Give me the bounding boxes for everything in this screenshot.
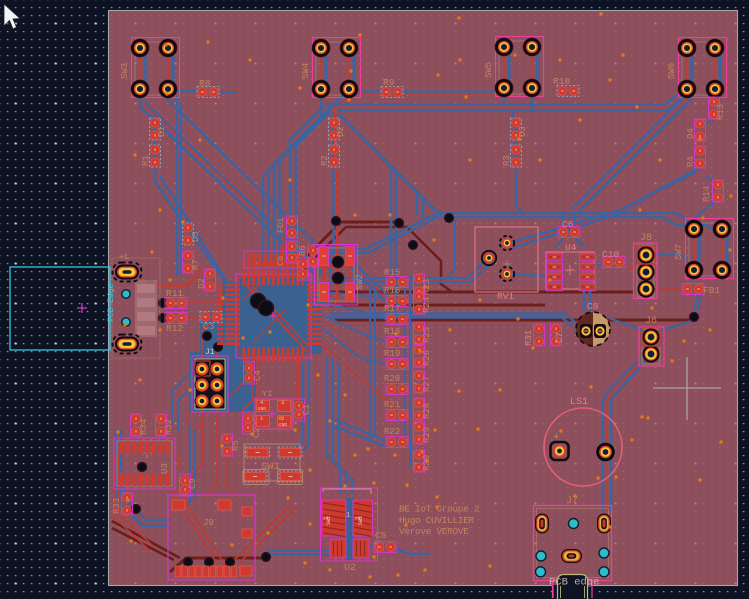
- svg-text:R16: R16: [384, 286, 400, 296]
- svg-text:R21: R21: [384, 400, 400, 410]
- svg-text:R33: R33: [112, 498, 122, 514]
- svg-text:R27: R27: [422, 376, 432, 392]
- svg-text:C6: C6: [562, 219, 574, 230]
- svg-text:J8: J8: [640, 233, 652, 244]
- svg-text:C5: C5: [375, 530, 387, 541]
- svg-text:LS1: LS1: [570, 397, 588, 408]
- svg-text:R8: R8: [199, 78, 211, 89]
- svg-text:J7: J7: [566, 496, 578, 507]
- svg-text:R10: R10: [553, 76, 570, 87]
- svg-text:R6: R6: [298, 245, 308, 256]
- svg-text:FB1: FB1: [703, 285, 720, 296]
- svg-text:D2: D2: [197, 278, 207, 289]
- svg-text:D2: D2: [336, 126, 346, 137]
- svg-text:J1: J1: [205, 348, 215, 357]
- svg-text:SW7: SW7: [674, 244, 684, 260]
- svg-text:R11: R11: [166, 288, 183, 299]
- svg-text:R26: R26: [422, 350, 432, 366]
- svg-text:1: 1: [346, 512, 350, 520]
- svg-text:R28: R28: [422, 403, 432, 419]
- svg-text:Hugo CUVILLIER: Hugo CUVILLIER: [399, 515, 475, 526]
- svg-text:+L: +L: [119, 252, 129, 262]
- svg-text:SW6: SW6: [667, 63, 677, 79]
- svg-text:R14: R14: [702, 186, 712, 202]
- svg-text:+: +: [553, 432, 560, 444]
- svg-text:R30: R30: [422, 455, 432, 471]
- svg-text:R18: R18: [384, 327, 400, 337]
- svg-text:R13: R13: [716, 104, 726, 120]
- svg-text:R2: R2: [320, 155, 330, 166]
- svg-text:U4: U4: [565, 242, 577, 253]
- svg-text:SW2: SW2: [326, 516, 332, 525]
- svg-text:R7: R7: [191, 259, 201, 270]
- svg-text:R31: R31: [524, 330, 534, 346]
- svg-text:Verove VEROVE: Verove VEROVE: [399, 526, 469, 537]
- svg-text:D1: D1: [157, 126, 167, 137]
- svg-text:C7: C7: [555, 332, 565, 343]
- svg-text:SW1: SW1: [261, 461, 280, 473]
- svg-text:R22: R22: [384, 427, 400, 437]
- svg-text:D4: D4: [686, 128, 696, 139]
- svg-text:R17: R17: [384, 304, 400, 314]
- svg-text:C3: C3: [203, 321, 215, 332]
- svg-text:GND: GND: [279, 422, 287, 428]
- svg-text:R9: R9: [383, 77, 395, 88]
- svg-text:R25: R25: [422, 327, 432, 343]
- svg-text:SW3: SW3: [120, 63, 130, 79]
- svg-text:SW3: SW3: [358, 516, 364, 525]
- svg-text:R34: R34: [139, 419, 149, 435]
- svg-text:J6: J6: [645, 316, 657, 327]
- svg-text:R5: R5: [231, 440, 241, 451]
- svg-text:R29: R29: [422, 427, 432, 443]
- svg-text:C1: C1: [302, 404, 312, 415]
- svg-text:R4: R4: [686, 156, 696, 167]
- svg-text:U2: U2: [344, 563, 356, 574]
- svg-text:SW2: SW2: [355, 274, 365, 290]
- svg-text:SW5: SW5: [484, 62, 494, 78]
- svg-text:R32: R32: [164, 419, 174, 435]
- svg-text:J9: J9: [203, 518, 214, 528]
- svg-text:R20: R20: [384, 374, 400, 384]
- svg-text:BE IoT Groupe 2: BE IoT Groupe 2: [399, 504, 480, 515]
- svg-text:R3: R3: [502, 155, 512, 166]
- svg-text:R19: R19: [384, 349, 400, 359]
- svg-text:C9: C9: [188, 478, 198, 489]
- svg-text:3: 3: [281, 399, 284, 406]
- svg-text:Y1: Y1: [262, 389, 272, 399]
- svg-text:C10: C10: [602, 249, 619, 260]
- svg-text:GND: GND: [258, 406, 266, 412]
- svg-text:C8: C8: [276, 256, 286, 266]
- svg-text:C4: C4: [253, 370, 263, 381]
- svg-text:D3: D3: [518, 126, 528, 137]
- svg-text:SW4: SW4: [301, 63, 311, 79]
- svg-text:R12: R12: [166, 323, 183, 334]
- svg-text:R1: R1: [141, 155, 151, 166]
- svg-text:D5: D5: [191, 231, 201, 242]
- svg-text:U3: U3: [160, 463, 170, 474]
- svg-text:FD1: FD1: [276, 218, 286, 233]
- svg-text:PCB edge: PCB edge: [549, 577, 599, 589]
- svg-text:R24: R24: [422, 297, 432, 313]
- svg-text:C8: C8: [587, 301, 599, 312]
- svg-text:RV1: RV1: [497, 291, 514, 302]
- svg-text:PCB Edge: PCB Edge: [107, 283, 116, 322]
